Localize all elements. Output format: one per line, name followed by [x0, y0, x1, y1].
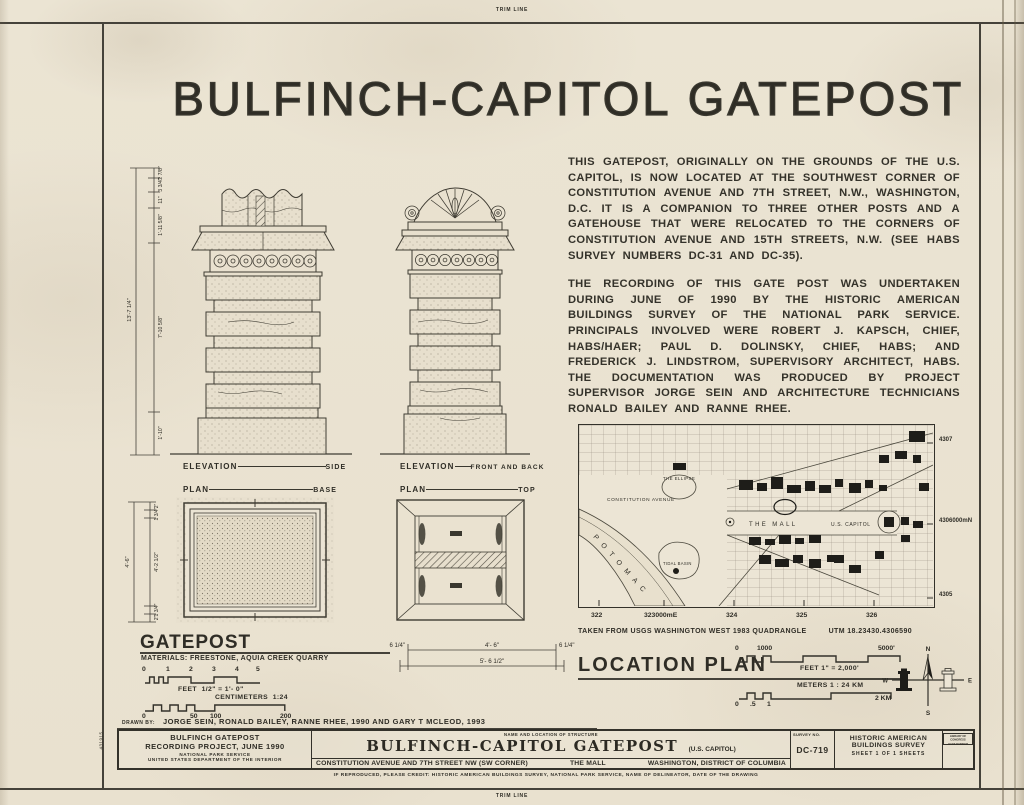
feet-tick-2: 2 [189, 666, 193, 673]
svg-text:2 7/8": 2 7/8" [158, 166, 164, 180]
cm-scale-label: CENTIMETERS 1:24 [215, 694, 288, 701]
survey-number: DC-719 [791, 745, 834, 755]
sheet-border-right [979, 22, 981, 788]
lockm-0: 0 [735, 701, 739, 708]
location-map-canvas: CONSTITUTION AVENUE THE ELLIPSE THE MALL… [579, 425, 933, 606]
reproduction-credit: IF REPRODUCED, PLEASE CREDIT: HISTORIC A… [117, 773, 975, 778]
paper-edge-right [1014, 0, 1024, 805]
gatepost-heading: GATEPOST [140, 632, 251, 654]
structure-address-row: CONSTITUTION AVENUE AND 7TH STREET NW (S… [312, 758, 790, 768]
structure-city: WASHINGTON, DISTRICT OF COLUMBIA [648, 760, 786, 767]
compass-n: N [926, 646, 931, 653]
location-map: CONSTITUTION AVENUE THE ELLIPSE THE MALL… [578, 424, 935, 608]
svg-text:4'-2 1/2": 4'-2 1/2" [154, 552, 160, 572]
caption-elevation-side: ELEVATIONSIDE [183, 462, 346, 471]
titleblock-corner-cell: LIBRARY OF CONGRESS HABS NUMBER [943, 731, 973, 768]
compass-s: S [926, 710, 931, 716]
margin-number: 431915 [99, 731, 104, 749]
map-source-caption: TAKEN FROM USGS WASHINGTON WEST 1983 QUA… [578, 628, 807, 635]
map-ytick-4307: 4307 [939, 437, 952, 443]
location-plan-underline [578, 678, 905, 680]
titleblock-name-cell: NAME AND LOCATION OF STRUCTURE BULFINCH-… [312, 731, 791, 768]
trim-line-bottom [0, 788, 1024, 790]
corner-stamp-box: LIBRARY OF CONGRESS HABS NUMBER [943, 733, 973, 745]
caption-plan-base: PLANBASE [183, 485, 337, 494]
side-elevation-drawing [168, 156, 354, 462]
svg-text:4'-6": 4'-6" [125, 556, 131, 567]
caption-elevation-front: ELEVATIONFRONT AND BACK [400, 462, 545, 471]
svg-text:3 3/4": 3 3/4" [158, 178, 164, 192]
front-elevation-drawing [380, 156, 530, 462]
lockm-1: 1 [767, 701, 771, 708]
survey-label: SURVEY NO. [791, 731, 834, 737]
structure-address: CONSTITUTION AVENUE AND 7TH STREET NW (S… [316, 760, 528, 767]
structure-name-suffix: (U.S. CAPITOL) [689, 746, 736, 753]
compass-w: W [882, 679, 888, 685]
map-ytick-4306: 4306000mN [939, 518, 972, 524]
structure-area: THE MALL [570, 760, 606, 767]
drawn-by-names: JORGE SEIN, RONALD BAILEY, RANNE RHEE, 1… [163, 717, 485, 726]
map-xtick-326: 326 [866, 612, 877, 619]
svg-text:TIDAL BASIN: TIDAL BASIN [663, 561, 692, 566]
map-xtick-325: 325 [796, 612, 807, 619]
svg-text:THE ELLIPSE: THE ELLIPSE [663, 476, 695, 481]
locfeet-1000: 1000 [757, 645, 772, 652]
svg-text:U.S. CAPITOL: U.S. CAPITOL [831, 522, 871, 528]
svg-text:1'-11 5/8": 1'-11 5/8" [158, 214, 164, 236]
sheet-title-right: GATEPOST [688, 72, 964, 125]
feet-tick-5: 5 [256, 666, 260, 673]
svg-text:6 1/4": 6 1/4" [390, 643, 405, 649]
svg-text:13'-7 1/4": 13'-7 1/4" [127, 298, 133, 322]
svg-text:4'- 6": 4'- 6" [485, 642, 499, 649]
location-feet-label: FEET 1" = 2,000' [800, 665, 859, 672]
lockm-half: .5 [750, 701, 756, 708]
titleblock-survey-cell: SURVEY NO. DC-719 [791, 731, 835, 768]
drawn-by-label: DRAWN BY: [122, 720, 155, 726]
svg-text:CONSTITUTION AVENUE: CONSTITUTION AVENUE [607, 497, 675, 503]
svg-text:11": 11" [158, 196, 164, 203]
svg-text:THE MALL: THE MALL [749, 522, 798, 528]
feet-tick-1: 1 [166, 666, 170, 673]
trim-label-top: TRIM LINE [0, 7, 1024, 13]
habs-sheet: TRIM LINE TRIM LINE 431915 BULFINCH-CAPI… [0, 0, 1024, 805]
feet-tick-0: 0 [142, 666, 146, 673]
narrative-block: THIS GATEPOST, ORIGINALLY ON THE GROUNDS… [568, 155, 960, 431]
titleblock-habs-cell: HISTORIC AMERICAN BUILDINGS SURVEY SHEET… [835, 731, 943, 768]
feet-tick-4: 4 [235, 666, 239, 673]
feet-tick-3: 3 [212, 666, 216, 673]
side-elevation-dimensions: 2 7/8" 3 3/4" 11" 1'-11 5/8" 7'-10 5/8" … [122, 160, 168, 460]
title-block: BULFINCH GATEPOST RECORDING PROJECT, JUN… [117, 729, 975, 770]
sheet-border-left [102, 22, 104, 788]
compass-e: E [968, 679, 972, 685]
sheet-title-left: BULFINCH-CAPITOL [173, 72, 672, 125]
svg-text:1 3/4": 1 3/4" [154, 603, 160, 616]
map-caption-row: TAKEN FROM USGS WASHINGTON WEST 1983 QUA… [578, 628, 912, 635]
map-xtick-323: 323000mE [644, 612, 677, 619]
structure-name: BULFINCH-CAPITOL GATEPOST [366, 737, 678, 755]
sheet-count: SHEET 1 OF 1 SHEETS [835, 751, 942, 757]
map-utm-caption: UTM 18.23430.4306590 [829, 628, 913, 635]
paper-edge-left [0, 0, 9, 805]
svg-text:7'-10 5/8": 7'-10 5/8" [158, 316, 164, 338]
structure-name-row: BULFINCH-CAPITOL GATEPOST (U.S. CAPITOL) [312, 737, 790, 756]
trim-label-bottom: TRIM LINE [0, 793, 1024, 799]
base-plan-dimensions: 2" 1 3/4" 4'-2 1/2" 1 3/4" 2" 4'-6" [120, 496, 162, 626]
trim-line-top [0, 22, 1024, 24]
feet-scale-bar [143, 674, 261, 686]
svg-text:1 3/4": 1 3/4" [154, 507, 160, 520]
map-xtick-324: 324 [726, 612, 737, 619]
svg-text:2": 2" [154, 616, 160, 621]
narrative-paragraph-1: THIS GATEPOST, ORIGINALLY ON THE GROUNDS… [568, 155, 960, 264]
top-plan-dimensions: 6 1/4" 4'- 6" 6 1/4" 5'- 6 1/2" [388, 638, 583, 676]
locfeet-0: 0 [735, 645, 739, 652]
gatepost-underline [140, 652, 390, 654]
svg-text:1'-10": 1'-10" [158, 426, 164, 439]
sheet-title: BULFINCH-CAPITOL GATEPOST [110, 66, 970, 130]
plan-top-drawing [394, 497, 527, 623]
caption-plan-top: PLANTOP [400, 485, 536, 494]
compass-rose: N S W E [878, 642, 978, 716]
location-meters-label: METERS 1 : 24 KM [797, 682, 863, 689]
svg-text:6 1/4": 6 1/4" [559, 643, 574, 649]
paper-crease-1 [1002, 0, 1004, 805]
map-ytick-4305: 4305 [939, 592, 952, 598]
map-xtick-322: 322 [591, 612, 602, 619]
drawn-by-row: DRAWN BY: JORGE SEIN, RONALD BAILEY, RAN… [122, 717, 485, 726]
gatepost-materials: MATERIALS: FREESTONE, AQUIA CREEK QUARRY [141, 655, 329, 662]
narrative-paragraph-2: THE RECORDING OF THIS GATE POST WAS UNDE… [568, 277, 960, 417]
svg-text:5'- 6 1/2": 5'- 6 1/2" [480, 658, 504, 665]
plan-base-drawing [176, 497, 334, 623]
feet-scale-label: FEET 1/2" = 1'- 0" [178, 686, 244, 693]
titleblock-project-cell: BULFINCH GATEPOST RECORDING PROJECT, JUN… [119, 731, 312, 768]
